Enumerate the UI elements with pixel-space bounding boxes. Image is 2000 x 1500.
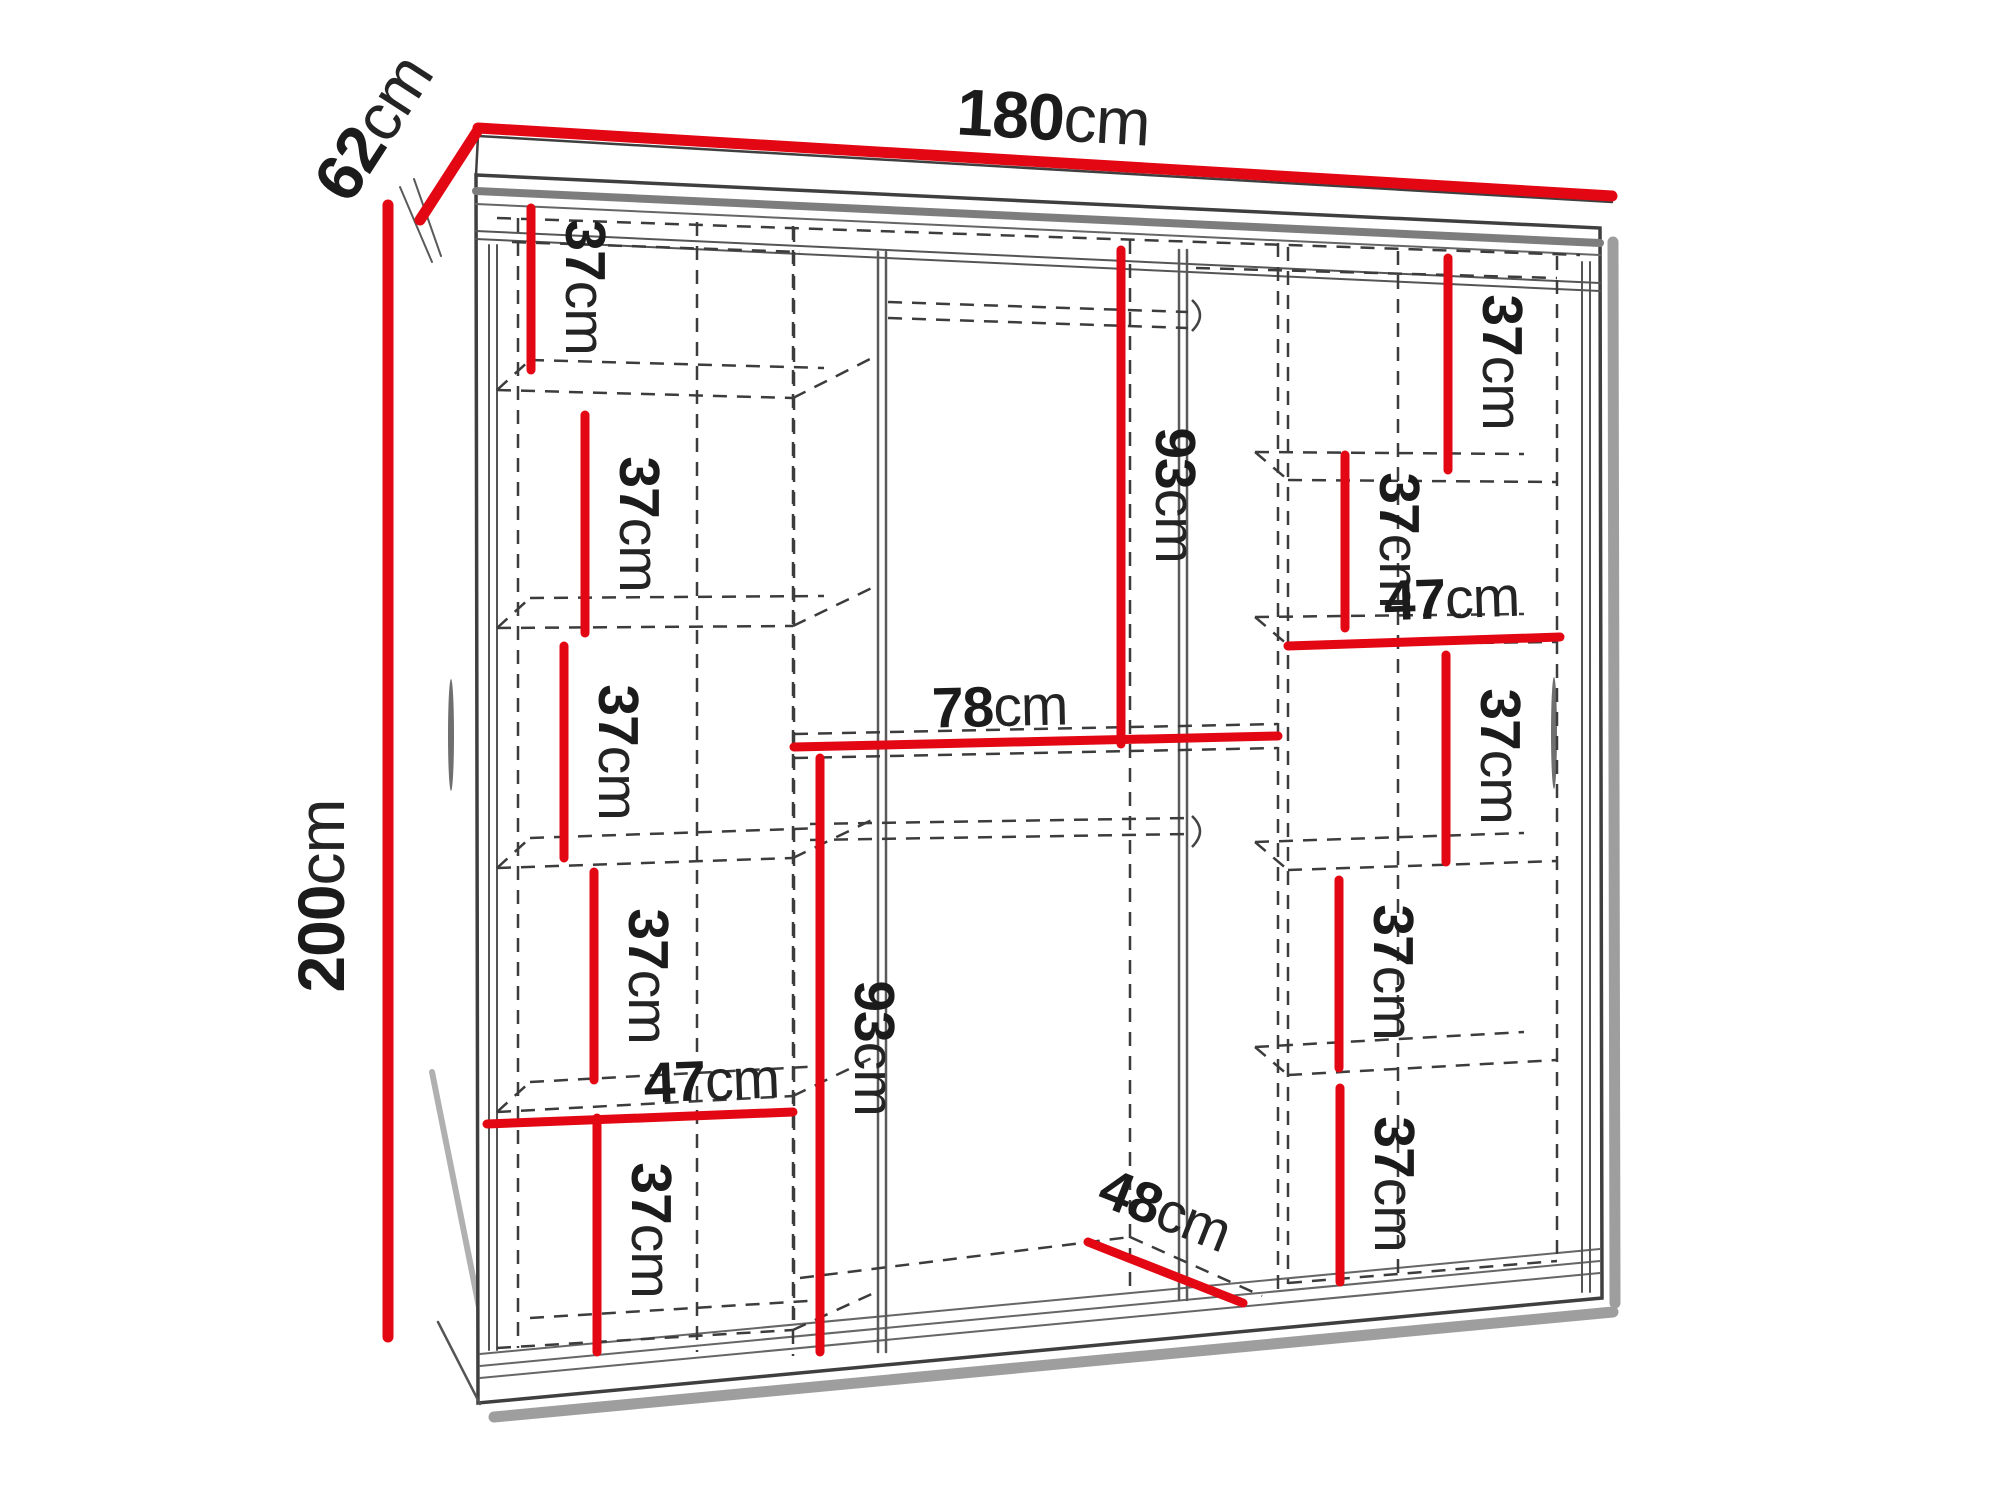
label-left-gap-4: 37cm bbox=[616, 908, 680, 1043]
wardrobe-dimension-diagram: 180cm 62cm 200cm 37cm 37cm 37cm 37cm 47c… bbox=[0, 0, 2000, 1500]
label-left-gap-3: 37cm bbox=[586, 684, 650, 819]
label-mid-width-78: 78cm bbox=[931, 673, 1068, 740]
label-left-width-47: 47cm bbox=[642, 1046, 780, 1115]
dim-line-depth-62 bbox=[420, 130, 478, 220]
label-right-gap-1: 37cm bbox=[1470, 294, 1534, 429]
label-height-200: 200cm bbox=[284, 799, 358, 992]
label-right-width-47: 47cm bbox=[1383, 565, 1520, 633]
label-left-gap-1: 37cm bbox=[553, 219, 617, 354]
label-depth-62: 62cm bbox=[299, 41, 447, 213]
wardrobe-dimension-diagram-page: 180cm 62cm 200cm 37cm 37cm 37cm 37cm 47c… bbox=[0, 0, 2000, 1500]
label-mid-upper-93: 93cm bbox=[1143, 427, 1207, 562]
label-right-gap-3: 37cm bbox=[1468, 688, 1532, 823]
label-left-gap-5: 37cm bbox=[619, 1162, 683, 1297]
label-right-gap-4: 37cm bbox=[1361, 904, 1425, 1039]
label-width-180: 180cm bbox=[955, 74, 1152, 159]
label-right-gap-5: 37cm bbox=[1362, 1116, 1426, 1251]
label-left-gap-2: 37cm bbox=[607, 456, 671, 591]
label-mid-lower-93: 93cm bbox=[842, 980, 906, 1115]
